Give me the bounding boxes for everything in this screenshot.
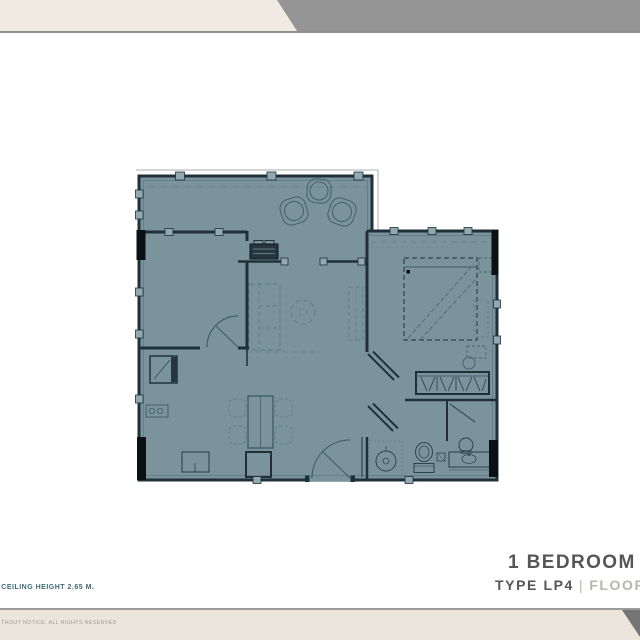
subtitle-divider: |	[579, 577, 584, 593]
header-bar	[0, 0, 640, 31]
page: - CEILING HEIGHT 2.65 M. 1 BEDROOM TYPE …	[0, 0, 640, 640]
header-accent-wedge	[0, 0, 640, 31]
floor-plan	[130, 164, 506, 490]
plan-type-label: FLOOR PLAN	[589, 577, 640, 593]
unit-type-label: TYPE LP4	[495, 577, 574, 593]
unit-title: 1 BEDROOM	[508, 552, 636, 574]
ceiling-height-note: - CEILING HEIGHT 2.65 M.	[0, 584, 94, 591]
unit-floor	[139, 176, 497, 480]
rights-text: THOUT NOTICE. ALL RIGHTS RESERVED	[1, 620, 117, 626]
header-rule	[0, 31, 640, 33]
footer-bar: THOUT NOTICE. ALL RIGHTS RESERVED	[0, 608, 640, 640]
unit-subtitle: TYPE LP4|FLOOR PLAN	[495, 577, 640, 593]
